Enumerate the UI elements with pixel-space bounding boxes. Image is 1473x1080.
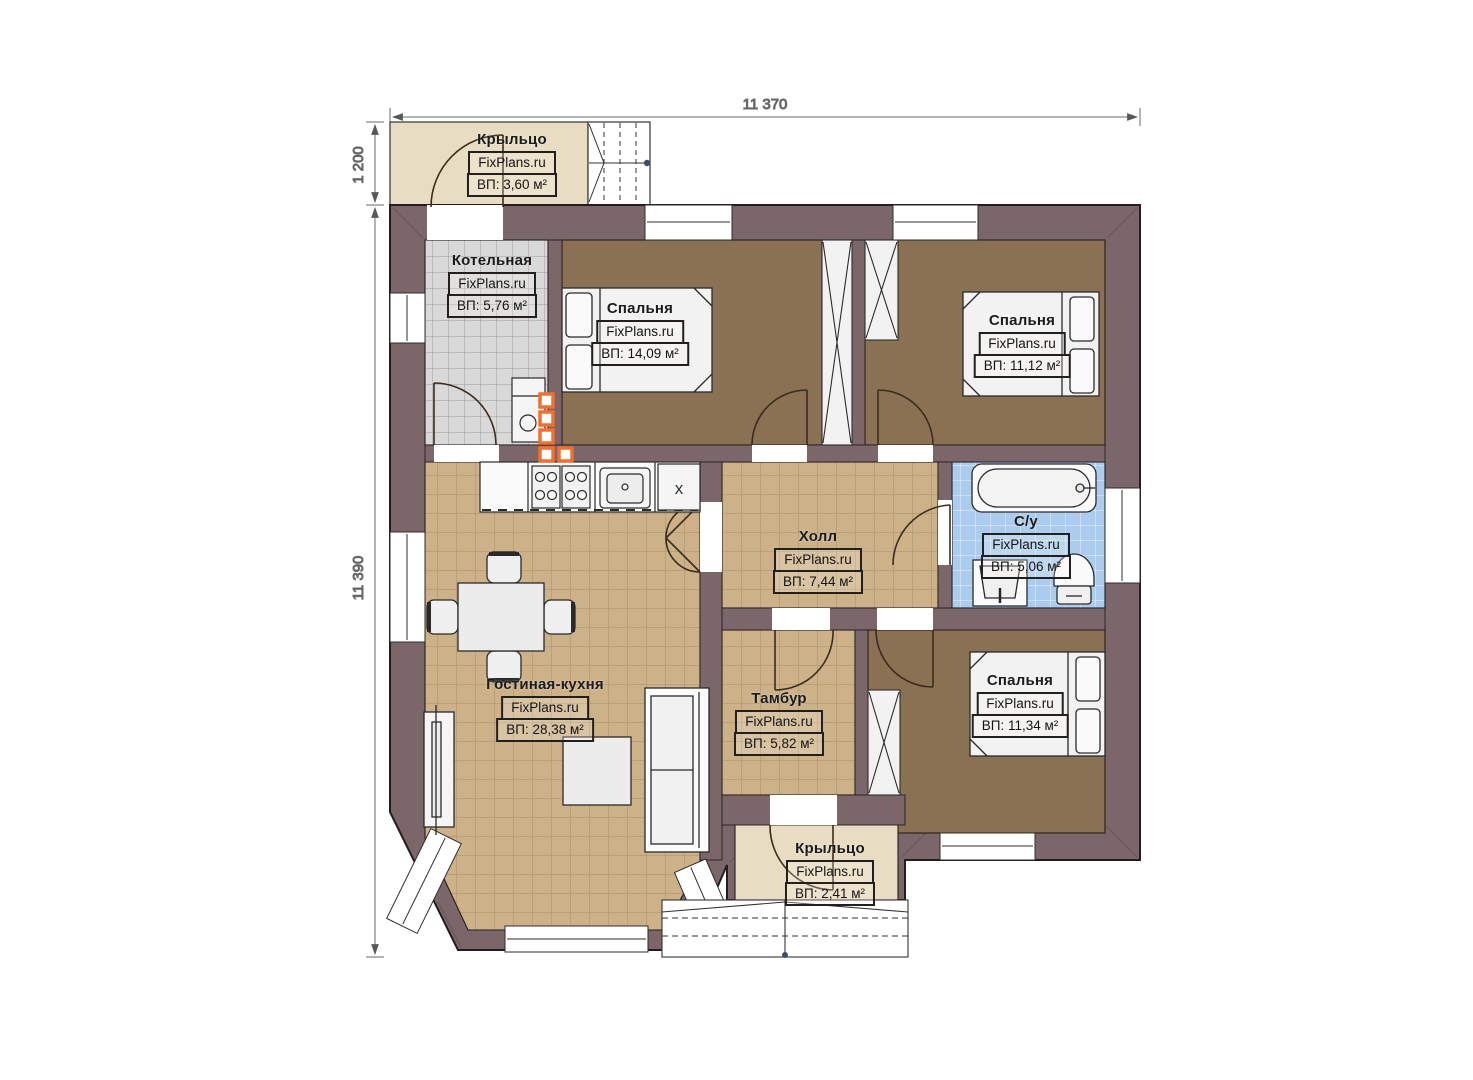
sink-icon (600, 468, 650, 508)
floor-hall (722, 462, 938, 608)
toilet-icon (1054, 554, 1094, 604)
floor-tambour (722, 630, 855, 795)
sofa-icon (645, 688, 709, 852)
svg-text:x: x (675, 479, 684, 498)
dim-height-label: 11 390 (350, 556, 367, 601)
floor-plan-page: 11 370 1 200 11 390 (0, 0, 1473, 1080)
bed-icon (970, 652, 1105, 756)
top-porch (390, 122, 650, 205)
dim-porch-height-label: 1 200 (350, 146, 367, 184)
bottom-steps (662, 900, 908, 958)
fridge-icon: x (658, 464, 700, 510)
bathtub-icon (972, 464, 1096, 512)
dim-width-label: 11 370 (743, 96, 788, 113)
kitchen-counter: x (480, 462, 700, 512)
washbasin-icon (973, 560, 1027, 606)
door-opening (427, 205, 503, 240)
floor-plan-drawing: 11 370 1 200 11 390 (0, 0, 1473, 1080)
tv-cabinet-icon (424, 705, 454, 835)
coffee-table-icon (563, 737, 631, 805)
bed-icon (562, 288, 712, 392)
bed-icon (963, 292, 1099, 396)
